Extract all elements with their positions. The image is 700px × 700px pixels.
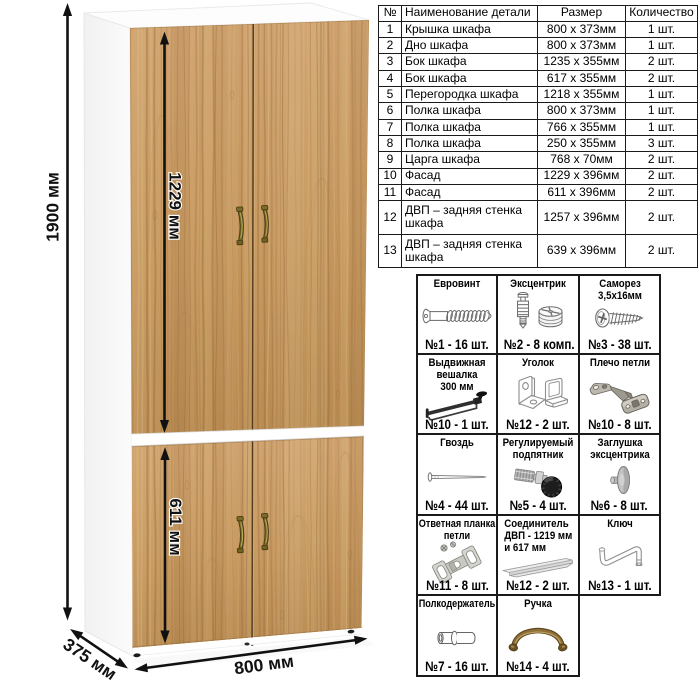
svg-text:1900 мм: 1900 мм — [43, 172, 63, 242]
svg-text:611 мм: 611 мм — [166, 498, 185, 555]
svg-text:1229 мм: 1229 мм — [166, 172, 185, 240]
